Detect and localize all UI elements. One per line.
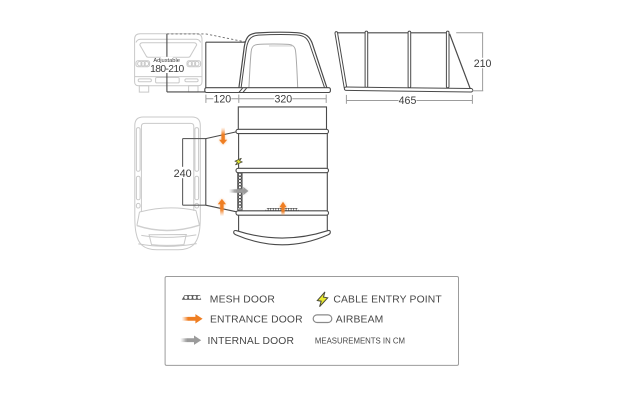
svg-text:320: 320 <box>274 94 292 106</box>
svg-text:465: 465 <box>399 95 417 107</box>
svg-text:240: 240 <box>174 168 192 180</box>
svg-text:CABLE ENTRY POINT: CABLE ENTRY POINT <box>333 295 442 306</box>
svg-text:ENTRANCE DOOR: ENTRANCE DOOR <box>210 315 303 326</box>
svg-text:180-210: 180-210 <box>150 64 184 75</box>
svg-text:MEASUREMENTS IN CM: MEASUREMENTS IN CM <box>315 336 405 345</box>
svg-text:INTERNAL DOOR: INTERNAL DOOR <box>208 336 295 347</box>
svg-text:210: 210 <box>474 58 492 70</box>
svg-text:MESH DOOR: MESH DOOR <box>210 295 275 306</box>
svg-text:120: 120 <box>213 94 231 106</box>
svg-text:AIRBEAM: AIRBEAM <box>336 315 384 326</box>
